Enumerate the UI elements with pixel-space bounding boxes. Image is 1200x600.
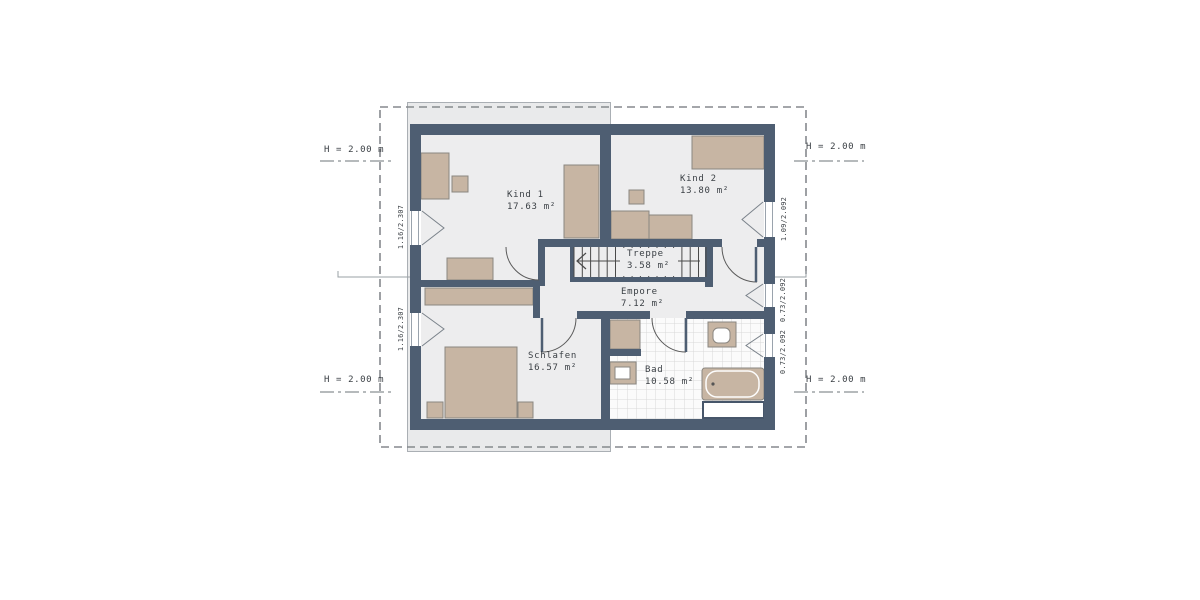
washbasin-bowl [615, 367, 630, 379]
room-label-kind1: Kind 1 17.63 m² [507, 190, 556, 213]
window-mark-right-upper: 1.09/2.092 [779, 196, 789, 242]
window-mark-left-upper: 1.16/2.307 [396, 204, 406, 250]
room-area: 16.57 m² [528, 363, 577, 375]
room-name: Schlafen [528, 351, 577, 363]
room-name: Kind 2 [680, 174, 729, 186]
room-name: Bad [645, 365, 694, 377]
schlafen-wardrobe [425, 288, 533, 305]
kind1-bed [421, 153, 449, 199]
room-label-empore: Empore 7.12 m² [621, 287, 664, 310]
kind2-desk-b [649, 215, 692, 239]
room-name: Empore [621, 287, 664, 299]
floor-plan-canvas: Kind 1 17.63 m² Kind 2 13.80 m² Treppe 3… [0, 0, 1200, 600]
kind1-nightstand [452, 176, 468, 192]
schlafen-nightstand-right [518, 402, 533, 418]
window-mark-right-middle: 0.73/2.092 [778, 277, 788, 323]
window-mark-left-lower: 1.16/2.307 [396, 306, 406, 352]
empore-closet [610, 320, 640, 349]
room-label-treppe: Treppe 3.58 m² [627, 249, 670, 272]
kind2-bed [692, 136, 764, 169]
height-mark-bottom-left: H = 2.00 m [324, 375, 384, 385]
window-mark-right-lower: 0.73/2.092 [778, 329, 788, 375]
bathtub-drain [711, 382, 714, 385]
schlafen-nightstand-left [427, 402, 443, 418]
kind1-wardrobe [564, 165, 599, 238]
kind2-nightstand [629, 190, 644, 204]
schlafen-bed [445, 347, 517, 418]
floor-plan-drawing [0, 0, 1200, 600]
room-name: Kind 1 [507, 190, 556, 202]
stair-rail-bottom [570, 277, 710, 282]
room-label-bad: Bad 10.58 m² [645, 365, 694, 388]
height-mark-top-left: H = 2.00 m [324, 145, 384, 155]
room-name: Treppe [627, 249, 670, 261]
kind2-desk-a [611, 211, 649, 239]
room-area: 13.80 m² [680, 186, 729, 198]
room-area: 3.58 m² [627, 261, 670, 273]
room-label-kind2: Kind 2 13.80 m² [680, 174, 729, 197]
room-label-schlafen: Schlafen 16.57 m² [528, 351, 577, 374]
height-mark-top-right: H = 2.00 m [806, 142, 866, 152]
room-area: 17.63 m² [507, 202, 556, 214]
height-mark-bottom-right: H = 2.00 m [806, 375, 866, 385]
stair-rail-left [570, 243, 574, 282]
toilet-bowl [713, 328, 730, 343]
shower-tray [703, 402, 764, 418]
room-area: 7.12 m² [621, 299, 664, 311]
kind1-desk [447, 258, 493, 280]
room-area: 10.58 m² [645, 377, 694, 389]
